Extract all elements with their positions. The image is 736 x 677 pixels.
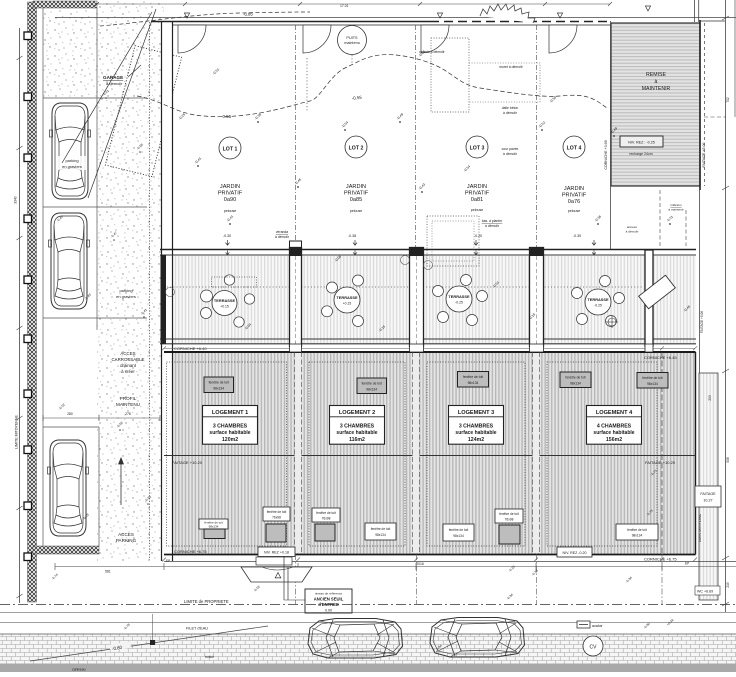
svg-text:156m2: 156m2 bbox=[606, 437, 622, 443]
svg-text:293: 293 bbox=[708, 395, 712, 401]
svg-text:FAITAGE +10.20: FAITAGE +10.20 bbox=[172, 460, 203, 465]
svg-text:fenêtre de toit: fenêtre de toit bbox=[316, 511, 336, 515]
svg-text:-0.25: -0.25 bbox=[594, 304, 602, 308]
svg-text:FILET d'EAU: FILET d'EAU bbox=[186, 627, 208, 631]
svg-text:fenêtre de toit: fenêtre de toit bbox=[362, 382, 382, 386]
svg-text:à maintenir: à maintenir bbox=[668, 208, 683, 212]
svg-text:NIV. REZ +0.18: NIV. REZ +0.18 bbox=[264, 551, 289, 555]
svg-text:JARDIN: JARDIN bbox=[467, 184, 487, 190]
svg-text:98x134: 98x134 bbox=[647, 382, 658, 386]
svg-text:parking: parking bbox=[119, 288, 132, 293]
svg-text:CV: CV bbox=[590, 645, 598, 651]
svg-text:10.27: 10.27 bbox=[703, 499, 712, 503]
svg-text:REMISE: REMISE bbox=[646, 72, 666, 78]
svg-text:pelouse: pelouse bbox=[471, 208, 484, 212]
svg-text:116m2: 116m2 bbox=[349, 437, 365, 443]
svg-text:fenêtre de toit: fenêtre de toit bbox=[371, 527, 391, 531]
svg-text:ACCES: ACCES bbox=[120, 351, 135, 356]
svg-text:avaloir: avaloir bbox=[592, 624, 603, 628]
svg-text:dalle béton: dalle béton bbox=[502, 106, 519, 110]
svg-text:98x134: 98x134 bbox=[375, 533, 386, 537]
svg-text:véranda: véranda bbox=[276, 230, 288, 234]
svg-text:76x98: 76x98 bbox=[505, 518, 514, 522]
svg-text:98x134: 98x134 bbox=[570, 382, 581, 386]
svg-text:PRIVATIF: PRIVATIF bbox=[218, 191, 243, 197]
svg-text:278: 278 bbox=[125, 412, 131, 416]
svg-text:2016: 2016 bbox=[416, 562, 424, 566]
svg-text:FAITAGE +5.06: FAITAGE +5.06 bbox=[700, 311, 704, 333]
svg-text:98x134: 98x134 bbox=[213, 387, 224, 391]
svg-text:0a85: 0a85 bbox=[350, 197, 362, 203]
svg-text:à créer: à créer bbox=[121, 369, 135, 374]
svg-text:MAINTENIR: MAINTENIR bbox=[642, 86, 671, 92]
svg-text:surface habitable: surface habitable bbox=[336, 430, 377, 436]
svg-text:LOGEMENT 1: LOGEMENT 1 bbox=[212, 410, 248, 416]
svg-text:124m2: 124m2 bbox=[468, 437, 484, 443]
svg-text:fenêtre de toit: fenêtre de toit bbox=[499, 512, 519, 516]
svg-text:-0.25: -0.25 bbox=[455, 301, 463, 305]
svg-text:WC +6.69: WC +6.69 bbox=[697, 590, 713, 594]
svg-text:PROFIL: PROFIL bbox=[120, 396, 137, 401]
svg-text:-0.85: -0.85 bbox=[243, 11, 254, 17]
svg-text:CORNICHE +3.69: CORNICHE +3.69 bbox=[604, 140, 608, 169]
svg-text:17.01: 17.01 bbox=[340, 4, 349, 8]
svg-text:ACCES: ACCES bbox=[118, 532, 134, 537]
svg-text:+0.15: +0.15 bbox=[343, 302, 352, 306]
svg-text:à démolir: à démolir bbox=[503, 111, 518, 115]
svg-text:NIV. REZ -0.20: NIV. REZ -0.20 bbox=[562, 551, 586, 555]
svg-text:0a81: 0a81 bbox=[471, 197, 483, 203]
svg-text:PRIVATIF: PRIVATIF bbox=[562, 193, 587, 199]
svg-text:cour pavée: cour pavée bbox=[502, 147, 519, 151]
svg-text:surface habitable: surface habitable bbox=[593, 430, 634, 436]
svg-text:LOGEMENT 4: LOGEMENT 4 bbox=[596, 410, 633, 416]
svg-text:à démolir: à démolir bbox=[626, 230, 639, 234]
svg-text:CARROSSABLE: CARROSSABLE bbox=[112, 357, 145, 362]
svg-text:120m2: 120m2 bbox=[222, 437, 238, 443]
svg-text:LOT 1: LOT 1 bbox=[223, 147, 238, 153]
svg-text:0.00: 0.00 bbox=[325, 609, 332, 613]
svg-text:caniveau: caniveau bbox=[72, 668, 86, 672]
svg-text:drainant: drainant bbox=[120, 363, 137, 368]
svg-text:MAINTENU: MAINTENU bbox=[116, 402, 140, 407]
svg-text:TERRASSE: TERRASSE bbox=[587, 297, 609, 302]
svg-text:CORNICHE +6.75: CORNICHE +6.75 bbox=[174, 549, 207, 554]
svg-text:3 CHAMBRES: 3 CHAMBRES bbox=[213, 424, 248, 430]
svg-text:JARDIN: JARDIN bbox=[220, 184, 240, 190]
svg-text:recharge 24cm: recharge 24cm bbox=[629, 152, 652, 156]
svg-text:TERRASSE: TERRASSE bbox=[336, 295, 358, 300]
svg-text:PRIVATIF: PRIVATIF bbox=[344, 191, 369, 197]
svg-text:3 CHAMBRES: 3 CHAMBRES bbox=[459, 424, 494, 430]
svg-text:LOGEMENT 2: LOGEMENT 2 bbox=[339, 410, 375, 416]
svg-text:trottoir: trottoir bbox=[205, 655, 215, 659]
svg-text:fenêtre de toit: fenêtre de toit bbox=[642, 376, 662, 380]
svg-text:98x134: 98x134 bbox=[209, 525, 219, 529]
svg-text:LOGEMENT 3: LOGEMENT 3 bbox=[458, 410, 494, 416]
svg-text:en graviers: en graviers bbox=[116, 294, 136, 299]
svg-text:508: 508 bbox=[726, 457, 730, 463]
svg-text:219: 219 bbox=[726, 582, 730, 588]
svg-text:PARKING: PARKING bbox=[116, 538, 137, 543]
svg-text:pelouse: pelouse bbox=[568, 209, 581, 213]
svg-text:3340: 3340 bbox=[14, 196, 18, 204]
svg-text:98x134: 98x134 bbox=[632, 534, 643, 538]
svg-text:-0.38: -0.38 bbox=[348, 234, 356, 238]
svg-text:702: 702 bbox=[726, 97, 730, 103]
svg-text:0a90: 0a90 bbox=[224, 197, 236, 203]
svg-text:4 CHAMBRES: 4 CHAMBRES bbox=[597, 424, 632, 430]
svg-text:à démolir: à démolir bbox=[503, 152, 518, 156]
svg-text:LOT 2: LOT 2 bbox=[349, 146, 364, 152]
svg-text:parking: parking bbox=[65, 158, 78, 163]
svg-text:annexe: annexe bbox=[627, 225, 637, 229]
svg-text:76x98: 76x98 bbox=[322, 517, 331, 521]
svg-text:pelouse: pelouse bbox=[350, 209, 363, 213]
svg-text:-0.55: -0.55 bbox=[221, 114, 232, 119]
svg-text:-0.30: -0.30 bbox=[573, 234, 581, 238]
svg-text:pelouse: pelouse bbox=[224, 209, 237, 213]
svg-text:à démolir: à démolir bbox=[485, 224, 500, 228]
svg-text:-0.30: -0.30 bbox=[223, 234, 231, 238]
svg-text:millésim: millésim bbox=[670, 203, 682, 207]
svg-text:fenêtre de toit: fenêtre de toit bbox=[565, 376, 585, 380]
svg-text:ANCIEN SEUIL: ANCIEN SEUIL bbox=[314, 597, 344, 602]
svg-text:à démolir: à démolir bbox=[275, 235, 290, 239]
svg-text:+0.15: +0.15 bbox=[220, 305, 229, 309]
svg-text:fenêtre de toit: fenêtre de toit bbox=[463, 375, 483, 379]
svg-text:TERRASSE: TERRASSE bbox=[448, 294, 470, 299]
svg-text:PRIVATIF: PRIVATIF bbox=[465, 191, 490, 197]
svg-text:0a76: 0a76 bbox=[568, 199, 580, 205]
svg-text:à: à bbox=[655, 79, 658, 85]
svg-text:98x134: 98x134 bbox=[468, 381, 479, 385]
svg-text:3 CHAMBRES: 3 CHAMBRES bbox=[340, 424, 375, 430]
svg-text:76x98: 76x98 bbox=[272, 516, 281, 520]
svg-text:EP: EP bbox=[685, 562, 689, 566]
svg-text:CORNICHE +6.45: CORNICHE +6.45 bbox=[644, 355, 677, 360]
svg-text:niveau de référence: niveau de référence bbox=[315, 592, 343, 596]
svg-text:surface habitable: surface habitable bbox=[209, 430, 250, 436]
svg-text:-0.20: -0.20 bbox=[474, 234, 482, 238]
svg-text:581: 581 bbox=[105, 570, 111, 574]
svg-text:98x134: 98x134 bbox=[366, 388, 377, 392]
svg-text:280: 280 bbox=[67, 412, 73, 416]
svg-text:NIV. REZ : -0.25: NIV. REZ : -0.25 bbox=[628, 141, 655, 145]
svg-text:JARDIN: JARDIN bbox=[346, 184, 366, 190]
svg-text:98x134: 98x134 bbox=[453, 534, 464, 538]
svg-text:fenêtre de toit: fenêtre de toit bbox=[449, 528, 469, 532]
svg-text:LIMITE MITOYENNE: LIMITE MITOYENNE bbox=[15, 414, 19, 448]
svg-text:LIMITE de PROPRIETE: LIMITE de PROPRIETE bbox=[184, 599, 229, 604]
svg-text:fenêtre de toit: fenêtre de toit bbox=[267, 510, 287, 514]
svg-text:FAITAGE +10.20: FAITAGE +10.20 bbox=[645, 460, 676, 465]
svg-text:fenêtre de toit: fenêtre de toit bbox=[627, 528, 647, 532]
svg-text:fenêtre de toit: fenêtre de toit bbox=[209, 381, 229, 385]
svg-text:TERRASSE: TERRASSE bbox=[214, 298, 236, 303]
svg-text:EP: EP bbox=[166, 559, 170, 563]
svg-text:LOT 4: LOT 4 bbox=[567, 146, 582, 152]
svg-text:FAITAGE: FAITAGE bbox=[700, 492, 716, 496]
svg-text:LOT 3: LOT 3 bbox=[470, 146, 485, 152]
svg-text:PUITS: PUITS bbox=[346, 36, 358, 40]
svg-text:surface habitable: surface habitable bbox=[455, 430, 496, 436]
svg-text:maintenu: maintenu bbox=[344, 41, 360, 45]
svg-text:bas. à planter: bas. à planter bbox=[482, 219, 503, 223]
svg-text:JARDIN: JARDIN bbox=[564, 186, 584, 192]
svg-text:LIMITE MITOYENNE: LIMITE MITOYENNE bbox=[698, 514, 702, 542]
svg-text:en graviers: en graviers bbox=[62, 164, 82, 169]
svg-text:muret à démolir: muret à démolir bbox=[499, 65, 523, 69]
